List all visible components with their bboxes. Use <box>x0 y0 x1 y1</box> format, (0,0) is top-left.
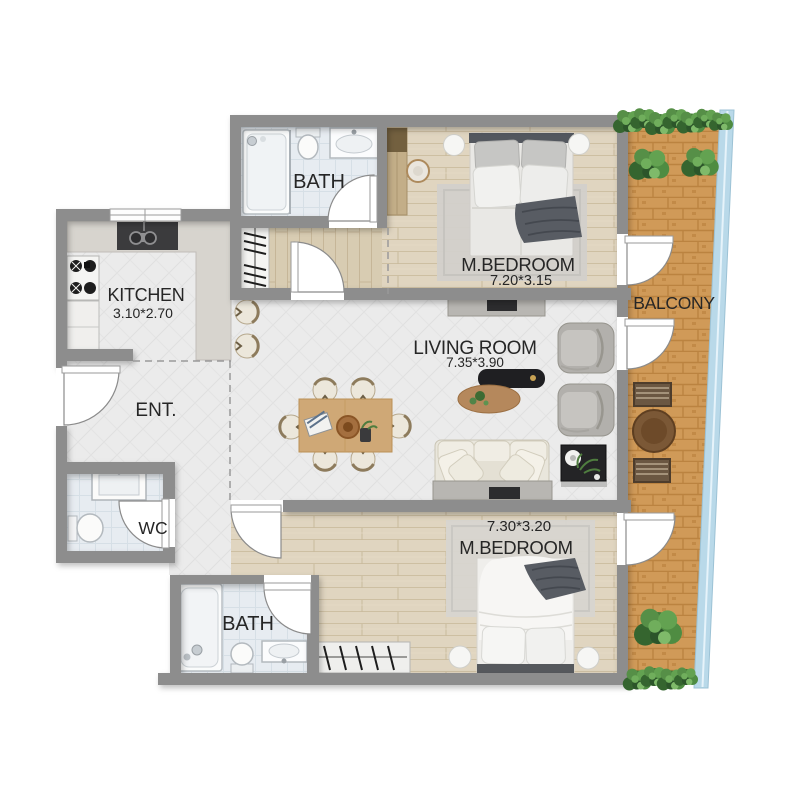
svg-text:7.30*3.20: 7.30*3.20 <box>487 518 551 535</box>
svg-text:7.35*3.90: 7.35*3.90 <box>446 355 504 370</box>
svg-text:BALCONY: BALCONY <box>633 293 715 313</box>
svg-text:M.BEDROOM: M.BEDROOM <box>461 254 574 275</box>
svg-text:M.BEDROOM: M.BEDROOM <box>459 537 572 558</box>
svg-text:WC: WC <box>138 518 167 538</box>
svg-text:ENT.: ENT. <box>135 400 176 421</box>
svg-text:BATH: BATH <box>293 171 345 193</box>
svg-text:KITCHEN: KITCHEN <box>108 285 185 305</box>
svg-text:BATH: BATH <box>222 613 274 635</box>
svg-text:7.20*3.15: 7.20*3.15 <box>490 273 552 289</box>
svg-text:3.10*2.70: 3.10*2.70 <box>113 305 173 321</box>
